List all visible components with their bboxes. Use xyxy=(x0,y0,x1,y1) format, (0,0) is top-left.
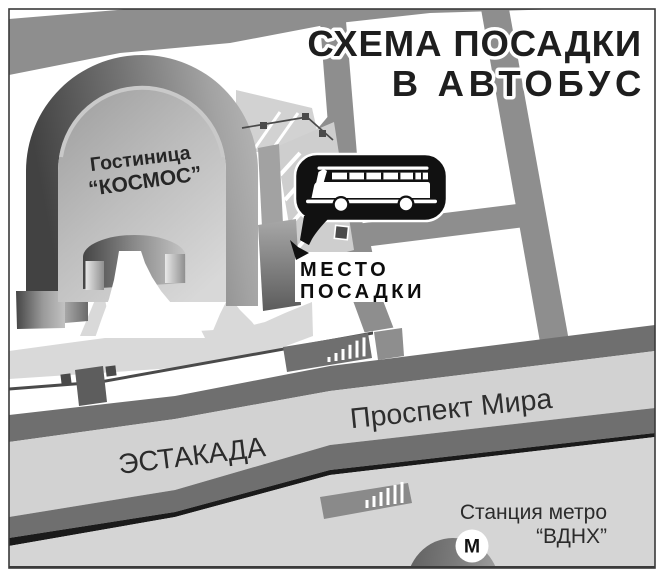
svg-text:“ВДНХ”: “ВДНХ” xyxy=(536,525,607,548)
svg-text:Станция метро: Станция метро xyxy=(460,501,607,524)
svg-text:М: М xyxy=(464,536,480,558)
svg-text:СХЕМА ПОСАДКИ: СХЕМА ПОСАДКИ xyxy=(307,23,642,64)
svg-text:МЕСТО: МЕСТО xyxy=(300,259,389,281)
svg-text:ПОСАДКИ: ПОСАДКИ xyxy=(300,281,425,303)
svg-text:В АВТОБУС: В АВТОБУС xyxy=(392,63,646,104)
